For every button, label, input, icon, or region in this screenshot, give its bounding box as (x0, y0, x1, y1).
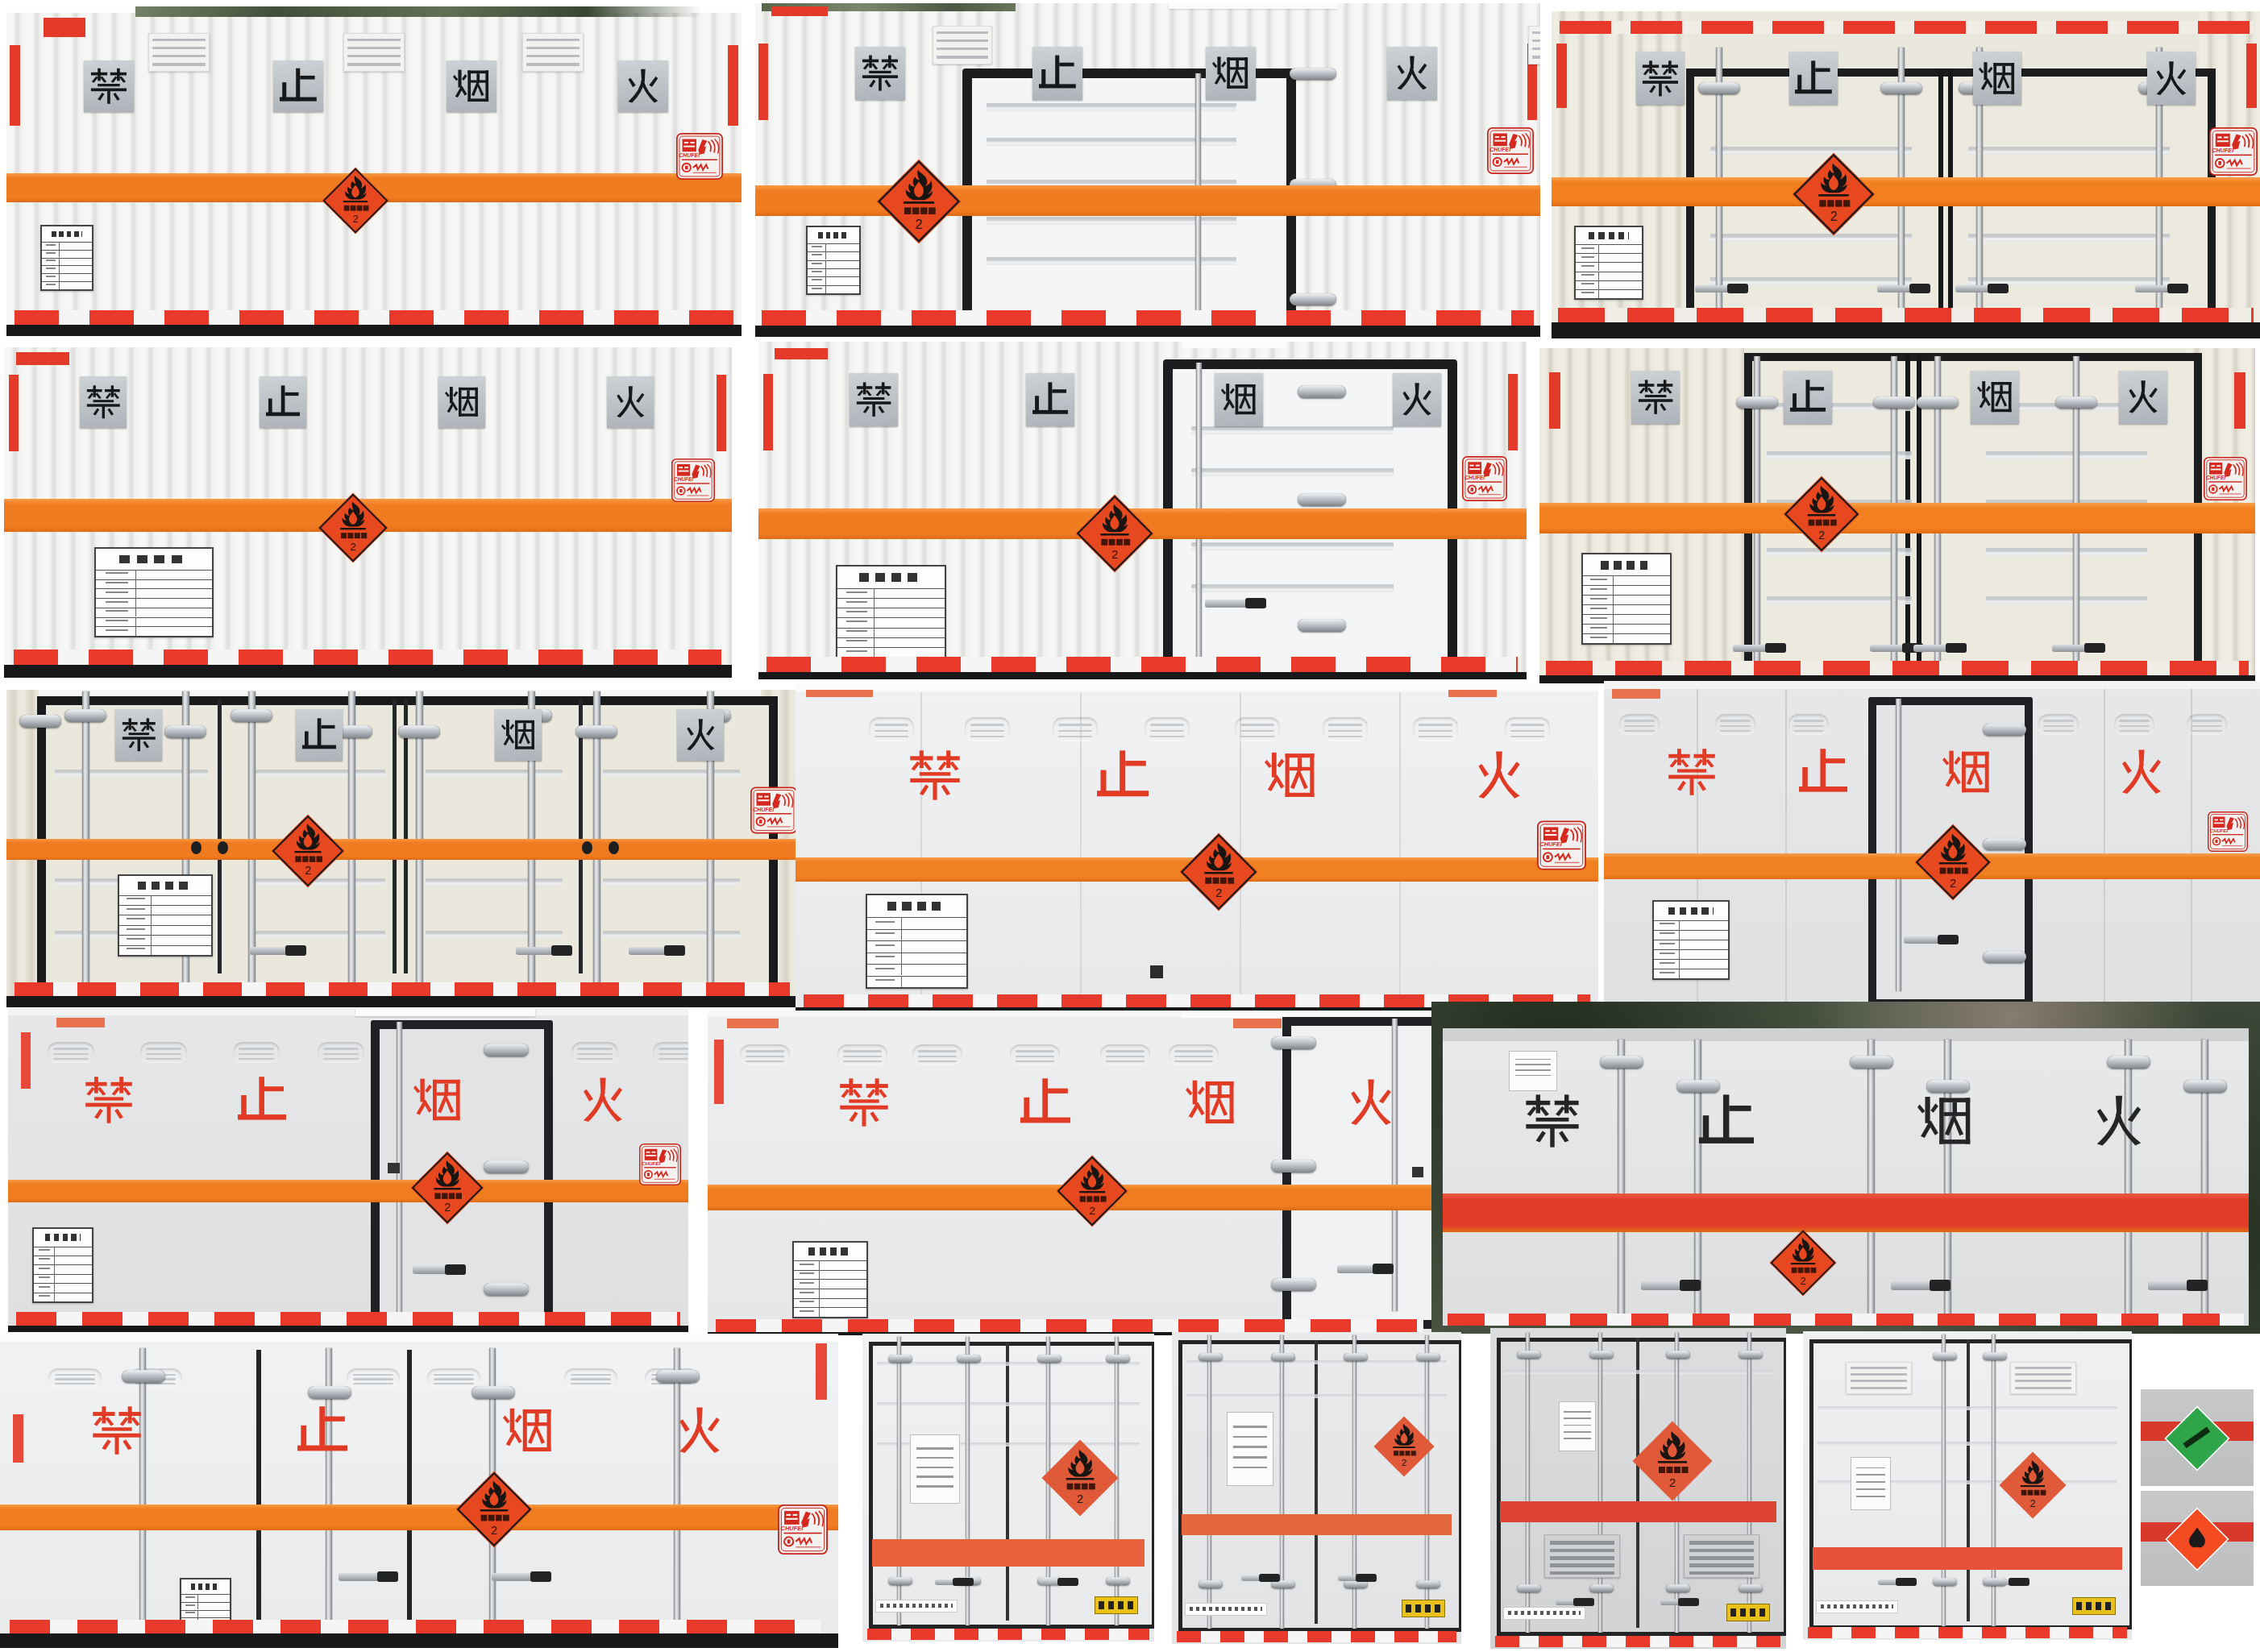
svg-text:2: 2 (491, 1524, 497, 1537)
svg-text:2: 2 (1402, 1458, 1406, 1467)
svg-text:CHUFEI: CHUFEI (2212, 147, 2234, 154)
svg-text:2: 2 (1111, 548, 1118, 561)
svg-text:CHUFEI: CHUFEI (753, 807, 775, 812)
svg-text:2: 2 (1077, 1492, 1083, 1505)
svg-text:CHUFEI: CHUFEI (674, 476, 693, 482)
svg-text:CHUFEI: CHUFEI (1489, 147, 1511, 152)
svg-text:2: 2 (2029, 1498, 2035, 1509)
svg-text:2: 2 (350, 541, 355, 553)
svg-text:2: 2 (916, 218, 923, 231)
svg-text:2: 2 (1950, 877, 1956, 890)
svg-text:2: 2 (1800, 1276, 1805, 1287)
svg-text:2: 2 (1830, 210, 1838, 223)
svg-text:2: 2 (305, 865, 311, 877)
svg-text:CHUFEI: CHUFEI (781, 1525, 804, 1532)
svg-text:2: 2 (1669, 1476, 1676, 1489)
svg-text:CHUFEI: CHUFEI (1539, 841, 1562, 848)
svg-text:2: 2 (1818, 529, 1825, 542)
svg-text:CHUFEI: CHUFEI (679, 152, 700, 158)
svg-text:2: 2 (1215, 886, 1222, 899)
svg-text:2: 2 (352, 214, 358, 225)
svg-text:CHUFEI: CHUFEI (1464, 475, 1485, 480)
svg-text:CHUFEI: CHUFEI (642, 1160, 660, 1166)
svg-text:CHUFEI: CHUFEI (2210, 828, 2229, 833)
svg-text:2: 2 (444, 1202, 451, 1214)
svg-text:2: 2 (1089, 1205, 1095, 1217)
svg-text:CHUFEI: CHUFEI (2206, 475, 2225, 480)
